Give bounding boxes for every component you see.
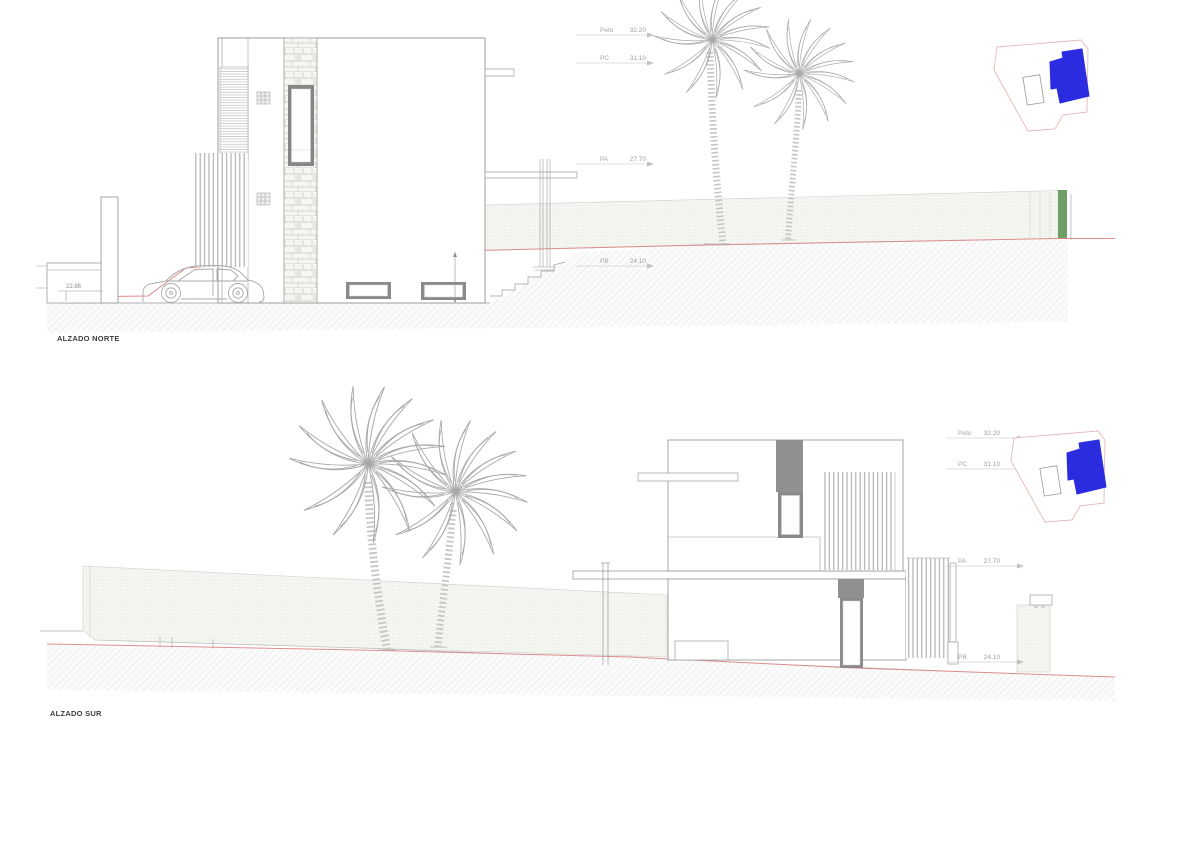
plinth-block: [675, 641, 728, 660]
level-label: PA: [958, 558, 967, 565]
elevations-drawing: 22.86 Peto 32.20: [0, 0, 1200, 848]
side-slat-fence: [906, 558, 950, 658]
upper-window: [778, 492, 803, 538]
stone-clad-column: [284, 38, 317, 303]
level-label: PC: [600, 55, 609, 62]
vent-grille: [257, 193, 270, 205]
elevation-sheet: 22.86 Peto 32.20: [0, 0, 1200, 848]
green-hedge-bar: [1058, 190, 1067, 239]
level-label: PA: [600, 156, 609, 163]
vent-grille: [257, 92, 270, 104]
level-value: 24.10: [630, 258, 647, 265]
level-value: 24.10: [984, 654, 1001, 661]
level-value: 31.10: [984, 461, 1001, 468]
pergola-beam: [485, 172, 577, 178]
basement-window: [421, 282, 466, 300]
roof-overhang: [485, 69, 514, 76]
tall-window: [288, 85, 314, 166]
low-wall: [47, 263, 101, 303]
drawing-title-south: ALZADO SUR: [50, 709, 102, 718]
level-value: 32.20: [984, 430, 1001, 437]
dark-spandrel-panel: [776, 440, 803, 492]
level-value: 32.20: [630, 27, 647, 34]
level-label: Peto: [600, 27, 614, 34]
gate-pillar: [101, 197, 118, 303]
level-value: 27.70: [630, 156, 647, 163]
spot-elevation-value: 22.86: [66, 284, 82, 290]
level-label: Peto: [958, 430, 972, 437]
cantilever-shelf: [638, 473, 738, 481]
entry-door: [838, 579, 864, 668]
garden-structure: [1017, 595, 1052, 672]
drawing-title-north: ALZADO NORTE: [57, 334, 120, 343]
fence-post: [950, 563, 956, 642]
level-label: PB: [600, 258, 609, 265]
horizontal-louvre-panel: [220, 67, 248, 157]
vertical-slat-screen: [193, 153, 248, 267]
level-value: 27.70: [984, 558, 1001, 565]
level-label: PB: [958, 654, 967, 661]
upper-slat-screen: [824, 472, 895, 570]
level-value: 31.10: [630, 55, 647, 62]
sheet-background: [0, 0, 1200, 848]
basement-window: [346, 282, 391, 299]
level-label: PC: [958, 461, 967, 468]
